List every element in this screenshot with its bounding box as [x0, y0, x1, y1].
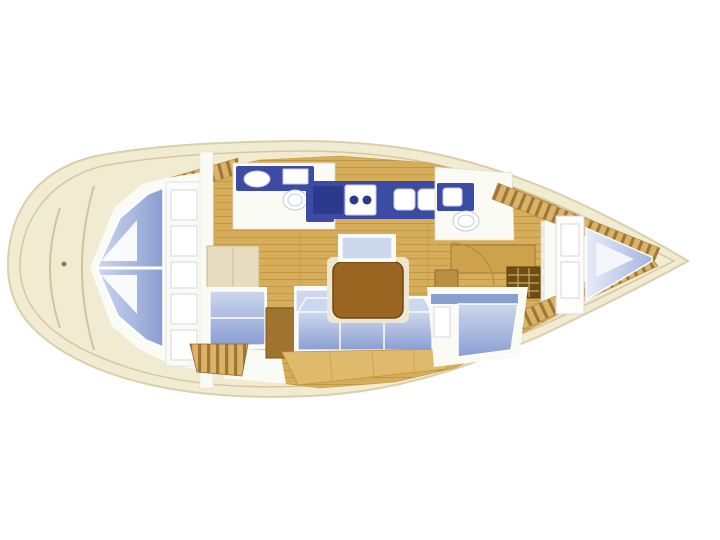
floor-plan-drawing [0, 0, 720, 540]
locker-door [171, 226, 197, 256]
windlass-dot [62, 262, 67, 267]
galley-sink [394, 189, 415, 210]
locker-door [171, 190, 197, 220]
stove-burner [350, 196, 359, 205]
stern-panel [561, 224, 579, 256]
yacht-floor-plan [0, 0, 720, 540]
stove-burner [363, 196, 372, 205]
toilet-bowl [283, 190, 307, 210]
locker-door [171, 294, 197, 324]
washbasin [244, 171, 270, 187]
locker-door [171, 262, 197, 288]
aft-head-sink [443, 188, 462, 206]
aft-toilet-bowl [453, 211, 479, 231]
aft-cabin [427, 287, 528, 367]
slatted-storage-box [190, 344, 248, 376]
aft-berth-headboard [431, 294, 518, 304]
toilet-cistern [283, 169, 308, 184]
galley-cabinet-door [313, 186, 343, 214]
galley [310, 181, 446, 219]
aft-head [435, 167, 514, 240]
stern-panel [561, 262, 579, 298]
aft-double-berth [458, 304, 518, 357]
side-seat-cushion [342, 237, 392, 259]
salon-table [333, 262, 403, 318]
mast-cabinet [266, 308, 297, 358]
aft-cabin-door [434, 307, 450, 337]
